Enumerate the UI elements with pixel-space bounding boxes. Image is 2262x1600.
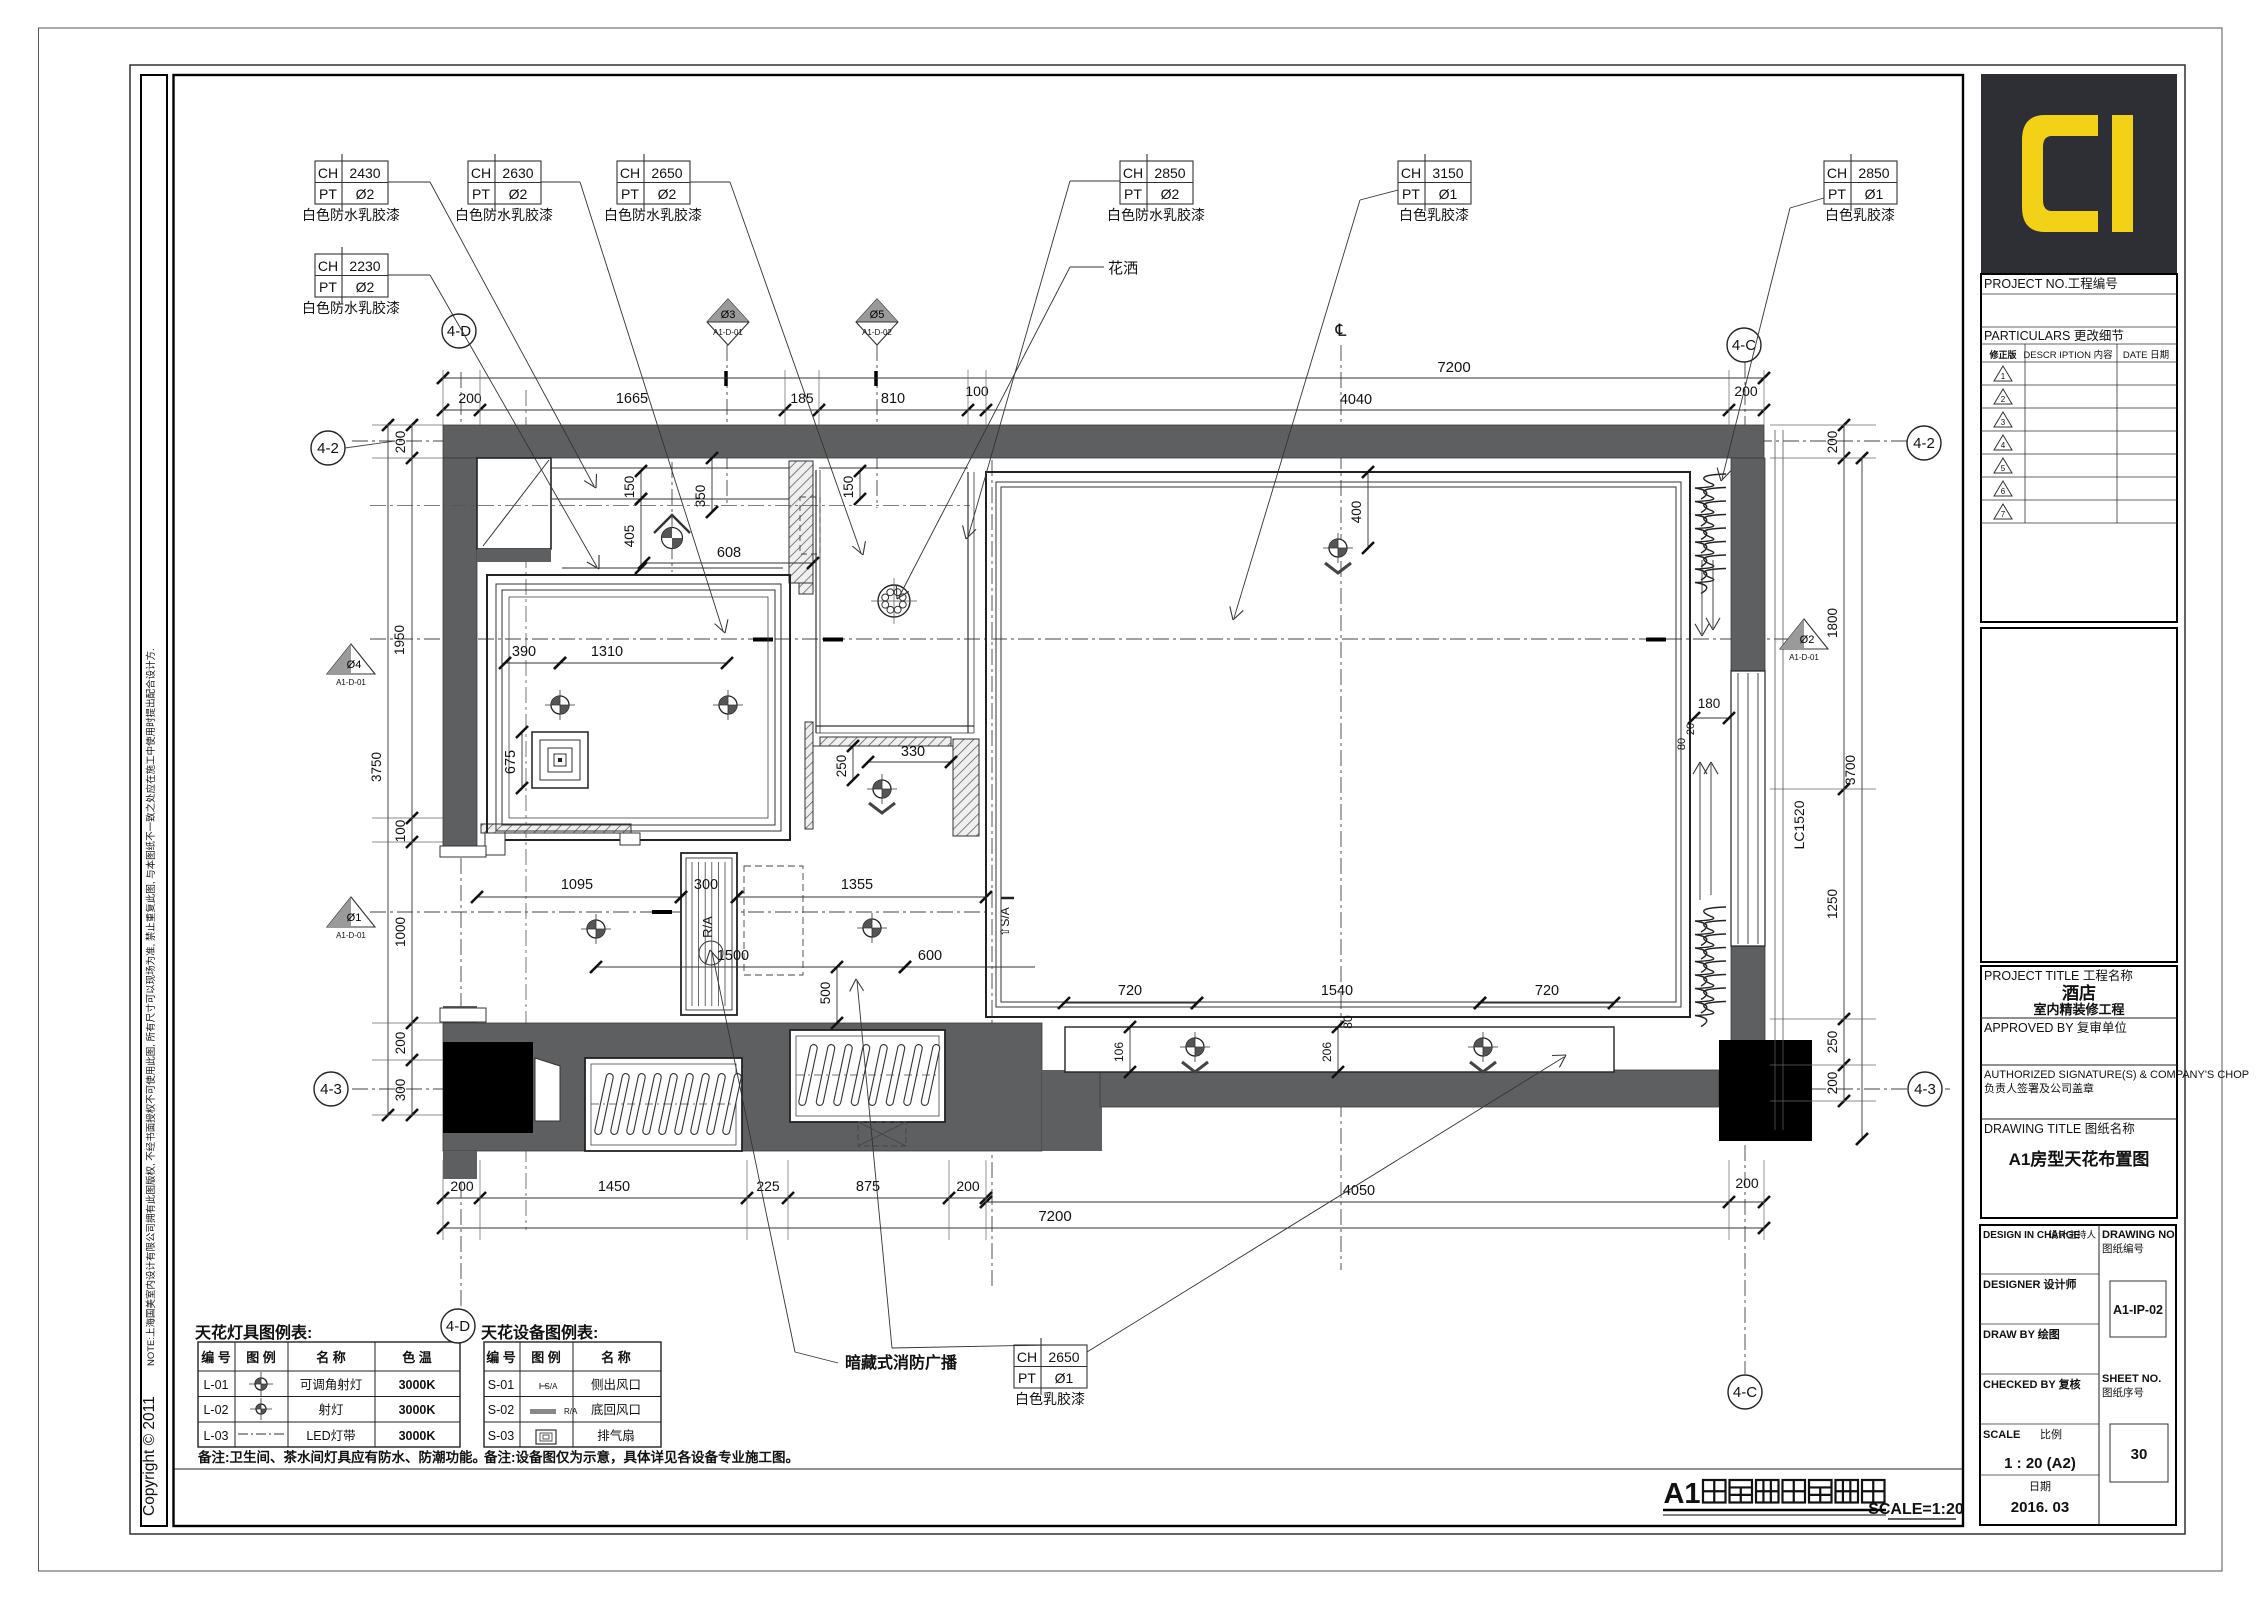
svg-text:A1: A1	[1663, 1478, 1700, 1510]
svg-text:PT: PT	[319, 279, 337, 295]
svg-text:DESIGNER 设计师: DESIGNER 设计师	[1983, 1277, 2077, 1291]
svg-text:排气扇: 排气扇	[597, 1428, 635, 1443]
svg-text:4-2: 4-2	[317, 440, 339, 457]
svg-text:A1-D-01: A1-D-01	[713, 328, 743, 337]
svg-text:名 称: 名 称	[316, 1350, 346, 1365]
svg-text:℄: ℄	[1335, 321, 1347, 340]
svg-text:2650: 2650	[651, 165, 682, 181]
svg-text:图 例: 图 例	[246, 1350, 276, 1365]
svg-text:PARTICULARS 更改细节: PARTICULARS 更改细节	[1984, 329, 2124, 343]
svg-text:白色乳胶漆: 白色乳胶漆	[1015, 1391, 1085, 1407]
svg-text:7200: 7200	[1038, 1208, 1071, 1225]
svg-text:CH: CH	[1401, 165, 1421, 181]
svg-text:2016. 03: 2016. 03	[2011, 1499, 2069, 1516]
svg-text:1: 1	[2001, 372, 2006, 381]
svg-text:80: 80	[1676, 738, 1688, 750]
svg-text:SHEET NO.: SHEET NO.	[2102, 1373, 2161, 1385]
svg-text:300: 300	[393, 1079, 408, 1102]
svg-text:350: 350	[693, 485, 708, 508]
svg-text:R/A: R/A	[700, 916, 715, 938]
svg-text:3150: 3150	[1432, 165, 1463, 181]
svg-text:4-D: 4-D	[446, 1318, 470, 1335]
svg-text:修正版: 修正版	[1988, 349, 2016, 360]
svg-text:DRAW BY 绘图: DRAW BY 绘图	[1983, 1327, 2060, 1341]
svg-text:备注:设备图仅为示意，具体详见各设备专业施工图。: 备注:设备图仅为示意，具体详见各设备专业施工图。	[483, 1449, 799, 1465]
svg-text:SCALE: SCALE	[1983, 1429, 2020, 1441]
svg-text:名 称: 名 称	[601, 1350, 631, 1365]
svg-text:30: 30	[2131, 1446, 2148, 1463]
svg-text:1540: 1540	[1321, 983, 1353, 999]
svg-text:405: 405	[622, 525, 637, 548]
svg-text:PT: PT	[319, 186, 337, 202]
svg-text:Ø2: Ø2	[1161, 186, 1180, 202]
svg-text:CH: CH	[471, 165, 491, 181]
svg-text:CH: CH	[620, 165, 640, 181]
svg-text:300: 300	[694, 877, 718, 893]
svg-text:白色防水乳胶漆: 白色防水乳胶漆	[302, 207, 400, 223]
svg-text:CH: CH	[1017, 1349, 1037, 1365]
svg-text:200: 200	[393, 1032, 408, 1055]
svg-text:Ø5: Ø5	[870, 309, 885, 321]
svg-text:R/A: R/A	[564, 1407, 578, 1416]
svg-text:200: 200	[393, 431, 408, 454]
svg-text:200: 200	[1734, 383, 1758, 399]
svg-text:S/A: S/A	[545, 1382, 559, 1391]
svg-text:白色防水乳胶漆: 白色防水乳胶漆	[302, 300, 400, 316]
svg-text:编 号: 编 号	[201, 1350, 231, 1365]
svg-text:4-C: 4-C	[1732, 337, 1756, 354]
svg-text:侧出风口: 侧出风口	[591, 1378, 641, 1392]
svg-text:图纸编号: 图纸编号	[2102, 1242, 2144, 1255]
svg-text:200: 200	[1735, 1175, 1759, 1191]
svg-text:PROJECT TITLE 工程名称: PROJECT TITLE 工程名称	[1984, 968, 2133, 983]
svg-text:天花灯具图例表:: 天花灯具图例表:	[195, 1323, 312, 1342]
svg-text:暗藏式消防广播: 暗藏式消防广播	[845, 1353, 958, 1372]
svg-text:CH: CH	[1123, 165, 1143, 181]
svg-text:DATE 日期: DATE 日期	[2123, 350, 2169, 361]
svg-text:225: 225	[756, 1178, 780, 1194]
svg-text:2230: 2230	[349, 258, 380, 274]
svg-text:L-02: L-02	[203, 1403, 228, 1417]
svg-text:A1-IP-02: A1-IP-02	[2113, 1303, 2163, 1317]
svg-text:Copyright © 2011: Copyright © 2011	[141, 1396, 158, 1516]
svg-text:PT: PT	[1018, 1370, 1036, 1386]
svg-text:SCALE=1:20: SCALE=1:20	[1868, 1501, 1964, 1518]
svg-text:3: 3	[2001, 418, 2006, 427]
svg-text:AUTHORIZED SIGNATURE(S) & COMP: AUTHORIZED SIGNATURE(S) & COMPANY'S CHOP	[1984, 1069, 2249, 1081]
svg-text:Ø1: Ø1	[1055, 1370, 1074, 1386]
svg-text:PT: PT	[621, 186, 639, 202]
svg-text:1310: 1310	[591, 644, 623, 660]
svg-text:Ø1: Ø1	[1865, 186, 1884, 202]
svg-text:2630: 2630	[502, 165, 533, 181]
svg-text:CHECKED BY 复核: CHECKED BY 复核	[1983, 1377, 2081, 1391]
svg-text:1250: 1250	[1825, 889, 1840, 919]
svg-text:S-02: S-02	[488, 1403, 514, 1417]
svg-text:白色防水乳胶漆: 白色防水乳胶漆	[1107, 207, 1205, 223]
svg-text:Ø2: Ø2	[356, 279, 375, 295]
svg-text:4040: 4040	[1340, 392, 1372, 408]
svg-text:4-2: 4-2	[1913, 435, 1935, 452]
svg-text:2850: 2850	[1154, 165, 1185, 181]
svg-text:200: 200	[1825, 1072, 1840, 1095]
svg-text:180: 180	[1698, 696, 1721, 711]
svg-text:DESCR IPTION 内容: DESCR IPTION 内容	[2023, 349, 2113, 361]
svg-text:⇧S/A: ⇧S/A	[998, 907, 1012, 936]
svg-text:600: 600	[918, 948, 942, 964]
svg-text:608: 608	[717, 545, 741, 561]
svg-text:比例: 比例	[2040, 1427, 2062, 1441]
svg-text:A1房型天花布置图: A1房型天花布置图	[2009, 1149, 2150, 1169]
svg-text:150: 150	[841, 476, 856, 499]
svg-text:3700: 3700	[1843, 755, 1858, 785]
svg-text:PT: PT	[1828, 186, 1846, 202]
svg-text:7: 7	[2001, 510, 2006, 519]
svg-text:图纸序号: 图纸序号	[2102, 1386, 2144, 1399]
svg-text:S-01: S-01	[488, 1378, 514, 1392]
svg-text:PT: PT	[472, 186, 490, 202]
svg-text:Ø2: Ø2	[509, 186, 528, 202]
svg-text:3000K: 3000K	[399, 1429, 436, 1443]
svg-text:1000: 1000	[393, 917, 408, 947]
svg-text:200: 200	[458, 390, 482, 406]
svg-text:810: 810	[881, 391, 905, 407]
svg-text:APPROVED BY 复审单位: APPROVED BY 复审单位	[1984, 1020, 2127, 1035]
svg-text:106: 106	[1112, 1042, 1126, 1062]
svg-text:1950: 1950	[392, 625, 407, 655]
svg-text:负责人签署及公司盖章: 负责人签署及公司盖章	[1984, 1081, 2094, 1095]
svg-text:白色防水乳胶漆: 白色防水乳胶漆	[455, 207, 553, 223]
svg-text:1500: 1500	[717, 948, 749, 964]
svg-text:Ø2: Ø2	[1800, 634, 1815, 646]
svg-text:1 : 20 (A2): 1 : 20 (A2)	[2004, 1455, 2076, 1472]
svg-text:720: 720	[1118, 983, 1142, 999]
svg-text:400: 400	[1349, 501, 1364, 524]
svg-text:2430: 2430	[349, 165, 380, 181]
svg-text:PT: PT	[1124, 186, 1142, 202]
svg-text:206: 206	[1320, 1042, 1334, 1062]
svg-text:250: 250	[1825, 1031, 1840, 1054]
svg-text:7200: 7200	[1437, 359, 1470, 376]
svg-text:1095: 1095	[561, 877, 593, 893]
svg-text:白色乳胶漆: 白色乳胶漆	[1825, 207, 1895, 223]
svg-text:2850: 2850	[1858, 165, 1889, 181]
svg-text:720: 720	[1535, 983, 1559, 999]
svg-text:天花设备图例表:: 天花设备图例表:	[481, 1323, 598, 1342]
svg-text:6: 6	[2001, 487, 2006, 496]
svg-text:编 号: 编 号	[486, 1350, 516, 1365]
svg-text:20: 20	[1685, 723, 1697, 735]
svg-text:可调角射灯: 可调角射灯	[300, 1377, 363, 1392]
svg-text:Ø2: Ø2	[356, 186, 375, 202]
svg-text:白色乳胶漆: 白色乳胶漆	[1399, 207, 1469, 223]
svg-text:设计主持人: 设计主持人	[2048, 1229, 2096, 1241]
svg-text:4-C: 4-C	[1733, 1384, 1757, 1401]
svg-text:Ø2: Ø2	[658, 186, 677, 202]
svg-text:4: 4	[2001, 441, 2006, 450]
svg-text:花洒: 花洒	[1108, 260, 1138, 277]
svg-text:CH: CH	[318, 165, 338, 181]
svg-text:A1-D-02: A1-D-02	[862, 328, 892, 337]
svg-text:LED灯带: LED灯带	[306, 1429, 355, 1443]
svg-text:酒店: 酒店	[2062, 983, 2096, 1003]
svg-text:2: 2	[2001, 395, 2006, 404]
svg-text:Ø4: Ø4	[347, 659, 362, 671]
svg-text:200: 200	[956, 1178, 980, 1194]
svg-text:DRAWING TITLE 图纸名称: DRAWING TITLE 图纸名称	[1984, 1121, 2135, 1136]
svg-text:PROJECT NO.工程编号: PROJECT NO.工程编号	[1984, 276, 2118, 291]
svg-text:1665: 1665	[616, 391, 648, 407]
svg-text:射灯: 射灯	[318, 1402, 343, 1417]
svg-text:250: 250	[834, 755, 849, 778]
svg-text:4-3: 4-3	[1914, 1081, 1936, 1098]
svg-text:S-03: S-03	[488, 1429, 514, 1443]
svg-text:3000K: 3000K	[399, 1378, 436, 1392]
svg-text:日期: 日期	[2029, 1480, 2051, 1493]
svg-text:3000K: 3000K	[399, 1403, 436, 1417]
svg-text:1450: 1450	[598, 1179, 630, 1195]
svg-text:3750: 3750	[369, 752, 384, 782]
svg-text:Ø1: Ø1	[347, 912, 362, 924]
svg-text:Ø1: Ø1	[1439, 186, 1458, 202]
svg-text:200: 200	[450, 1178, 474, 1194]
svg-text:LC1520: LC1520	[1791, 800, 1807, 849]
svg-text:500: 500	[818, 982, 833, 1005]
svg-text:Ø3: Ø3	[721, 309, 736, 321]
svg-text:A1-D-01: A1-D-01	[1789, 653, 1819, 662]
svg-text:150: 150	[622, 476, 637, 499]
svg-text:L-03: L-03	[203, 1429, 228, 1443]
svg-text:CH: CH	[1827, 165, 1847, 181]
svg-text:4-3: 4-3	[320, 1081, 342, 1098]
svg-text:NOTE:上海国美室内设计有限公司拥有此图版权, 不经书面授: NOTE:上海国美室内设计有限公司拥有此图版权, 不经书面授权不可使用此图, 所…	[145, 648, 157, 1366]
svg-text:1800: 1800	[1825, 608, 1840, 638]
svg-text:100: 100	[965, 383, 989, 399]
svg-text:DRAWING NO.: DRAWING NO.	[2102, 1229, 2178, 1241]
svg-text:色 温: 色 温	[402, 1350, 432, 1365]
svg-text:底回风口: 底回风口	[591, 1402, 641, 1417]
svg-text:675: 675	[503, 750, 519, 774]
svg-text:CH: CH	[318, 258, 338, 274]
svg-text:L-01: L-01	[203, 1378, 228, 1392]
svg-text:A1-D-01: A1-D-01	[336, 678, 366, 687]
svg-text:5: 5	[2001, 464, 2006, 473]
svg-text:室内精装修工程: 室内精装修工程	[2033, 1002, 2124, 1017]
svg-text:200: 200	[1825, 431, 1840, 454]
svg-text:100: 100	[393, 820, 408, 843]
svg-text:1355: 1355	[841, 877, 873, 893]
svg-text:备注:卫生间、茶水间灯具应有防水、防潮功能。: 备注:卫生间、茶水间灯具应有防水、防潮功能。	[197, 1449, 486, 1465]
svg-text:2650: 2650	[1048, 1349, 1079, 1365]
svg-text:PT: PT	[1402, 186, 1420, 202]
svg-text:185: 185	[790, 390, 814, 406]
svg-text:图 例: 图 例	[531, 1350, 561, 1365]
svg-text:330: 330	[901, 744, 925, 760]
svg-text:A1-D-01: A1-D-01	[336, 931, 366, 940]
svg-text:390: 390	[512, 644, 536, 660]
svg-text:白色防水乳胶漆: 白色防水乳胶漆	[604, 207, 702, 223]
